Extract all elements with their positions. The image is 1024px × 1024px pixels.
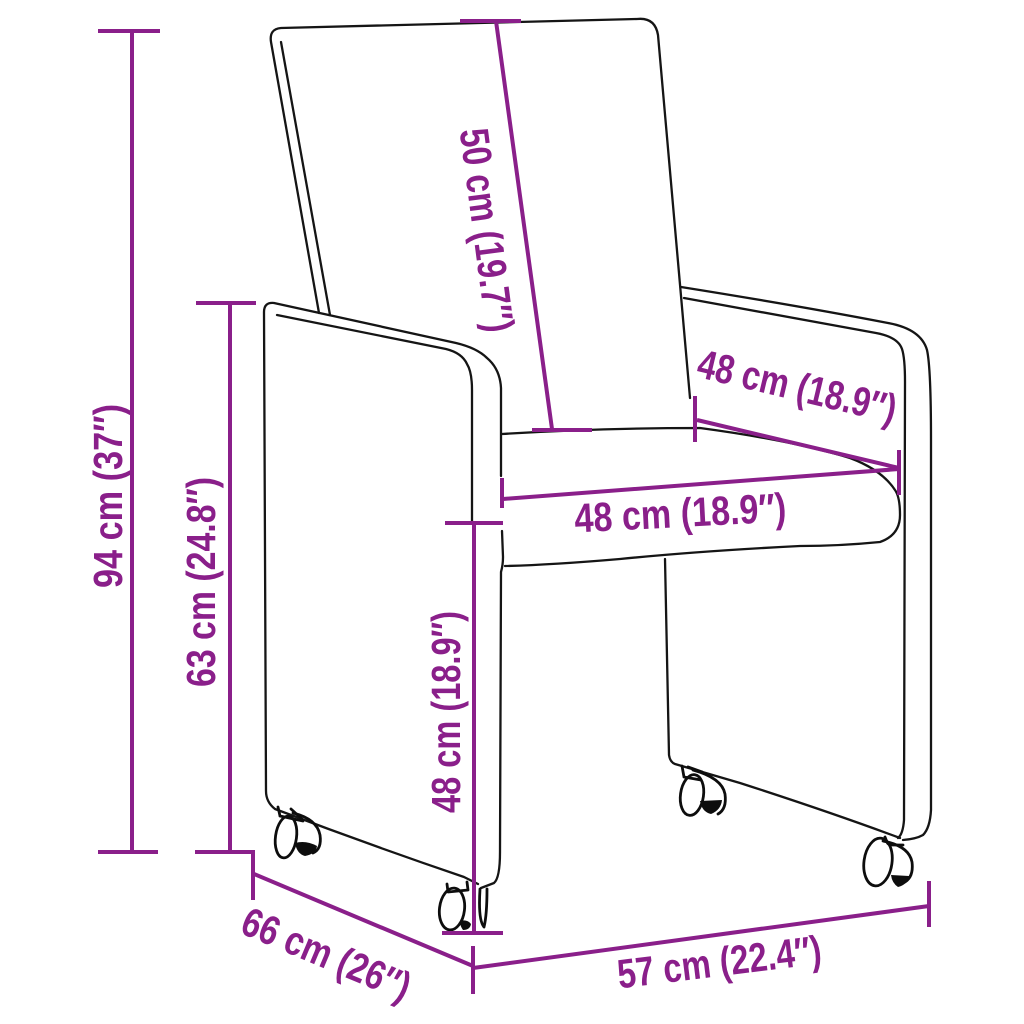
svg-text:94 cm (37″): 94 cm (37″) (85, 404, 131, 588)
svg-text:63 cm (24.8″): 63 cm (24.8″) (178, 477, 224, 687)
svg-text:48 cm (18.9″): 48 cm (18.9″) (423, 611, 469, 813)
